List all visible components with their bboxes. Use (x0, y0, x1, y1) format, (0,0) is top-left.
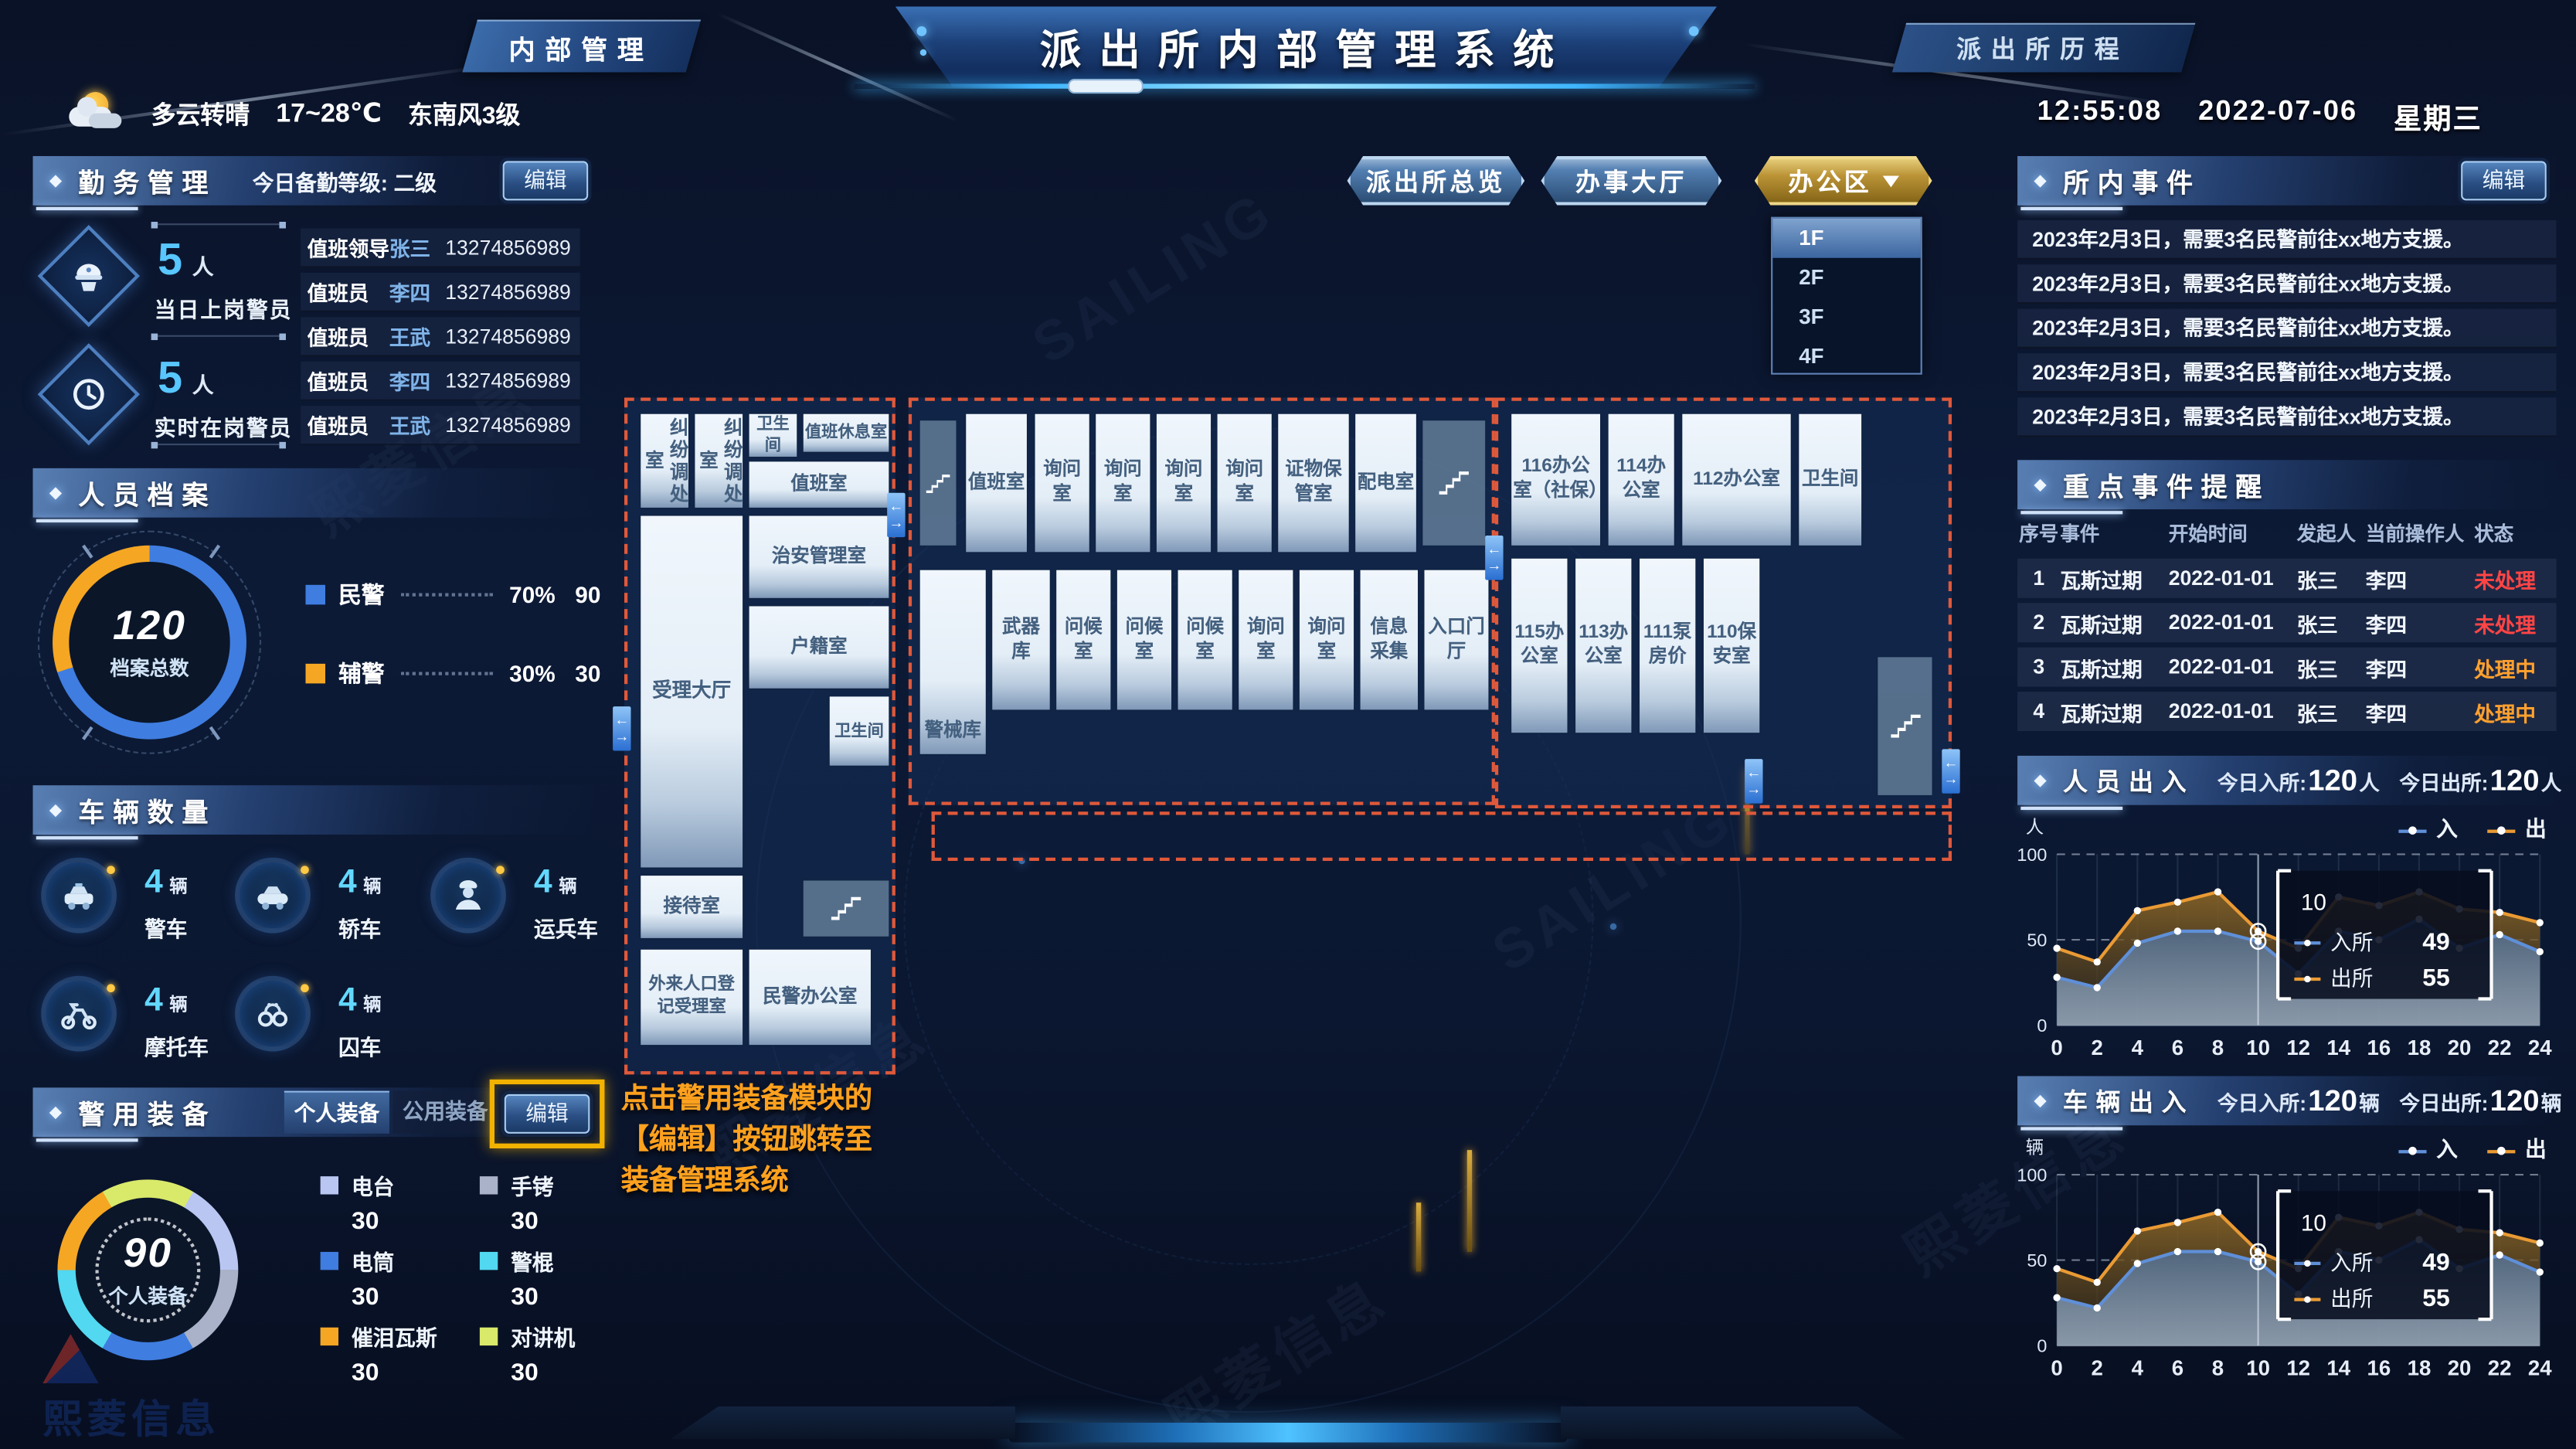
legend-value: 30 (511, 1283, 553, 1311)
weather-temp: 17~28℃ (276, 97, 382, 130)
roster-role: 值班员 (301, 409, 389, 440)
room[interactable]: 值班室 (749, 461, 889, 508)
chart-legend[interactable]: 入 出 (2398, 811, 2546, 842)
svg-text:8: 8 (2212, 1036, 2224, 1060)
weather-icon (69, 92, 124, 134)
status-badge: 处理中 (2474, 651, 2553, 682)
door-icon: ←→ (1942, 749, 1959, 793)
room[interactable]: 112办公室 (1682, 414, 1790, 546)
room[interactable]: 卫生间 (830, 696, 889, 765)
event-item: 2023年2月3日，需要3名民警前往xx地方支援。 (2017, 397, 2556, 437)
door-icon: ←→ (613, 706, 630, 750)
realtime-count-unit: 人 (192, 373, 214, 398)
svg-text:出所: 出所 (2330, 1287, 2373, 1311)
duty-edit-button[interactable]: 编辑 (503, 161, 589, 200)
equipment-legend-item: 警棍 30 (480, 1245, 554, 1311)
svg-text:6: 6 (2172, 1355, 2183, 1379)
room[interactable]: 111泵房价 (1640, 559, 1695, 733)
legend-label: 辅警 (338, 657, 385, 690)
legend-percent: 30% (509, 661, 556, 687)
vendor-logo-mark (42, 1334, 98, 1383)
glow-bar (1416, 1202, 1421, 1271)
panel-duty-title: 勤务管理 (78, 161, 216, 200)
roster-phone: 13274856989 (445, 369, 571, 392)
equipment-legend-item: 电筒 30 (321, 1245, 395, 1311)
legend-swatch (321, 1328, 338, 1345)
roster-row: 值班员 王武 13274856989 (301, 406, 579, 445)
room[interactable]: 询问室 (1300, 570, 1354, 710)
equipment-gauge: 90 个人装备 (57, 1179, 238, 1360)
panel-vehicle-flow-title: 车辆出入 (2063, 1083, 2194, 1118)
room[interactable]: 询问室 (1096, 414, 1150, 553)
svg-text:0: 0 (2051, 1036, 2062, 1060)
vehicle-count: 4辆 (338, 982, 382, 1020)
diamond-icon: ◆ (49, 484, 62, 502)
panel-archives-title: 人员档案 (78, 473, 216, 512)
svg-text:入所: 入所 (2330, 1250, 2373, 1274)
room[interactable]: 问候室 (1117, 570, 1171, 710)
event-item: 2023年2月3日，需要3名民警前往xx地方支援。 (2017, 264, 2556, 304)
edit-highlight-box (490, 1080, 605, 1148)
weather-widget: 多云转晴 17~28℃ 东南风3级 (69, 92, 520, 134)
key-events-row: 2 瓦斯过期 2022-01-01 张三 李四 未处理 (2017, 603, 2556, 642)
panel-key-events-header: ◆ 重点事件提醒 (2017, 460, 2556, 509)
diamond-icon: ◆ (49, 1104, 62, 1121)
svg-text:入所: 入所 (2330, 930, 2373, 954)
legend-label: 民警 (338, 578, 385, 611)
room[interactable]: 值班室 (966, 414, 1027, 553)
panel-vehicle-flow-header: ◆ 车辆出入 今日入所:120辆 今日出所:120辆 (2017, 1076, 2556, 1125)
room[interactable]: 询问室 (1239, 570, 1293, 710)
panel-vehicles-header: ◆ 车辆数量 (33, 785, 595, 835)
legend-swatch (480, 1176, 498, 1194)
equipment-gauge-dot-ring (95, 1217, 200, 1322)
duty-level-label: 今日备勤等级: 二级 (253, 165, 437, 196)
svg-text:8: 8 (2212, 1355, 2224, 1379)
door-icon: ←→ (1485, 536, 1503, 580)
panel-person-flow-title: 人员出入 (2063, 763, 2194, 798)
legend-swatch (305, 664, 325, 684)
svg-text:2: 2 (2092, 1355, 2103, 1379)
room[interactable]: 询问室 (1157, 414, 1211, 553)
clock-weekday: 星期三 (2394, 95, 2483, 136)
vehicle-name: 运兵车 (534, 912, 598, 943)
svg-text:100: 100 (2017, 845, 2047, 865)
room[interactable]: 问候室 (1178, 570, 1232, 710)
svg-text:18: 18 (2408, 1355, 2432, 1379)
svg-text:10: 10 (2301, 1210, 2326, 1236)
roster-name: 李四 (389, 365, 445, 396)
title-dot (920, 49, 927, 56)
vehicle-count: 4辆 (144, 982, 188, 1020)
equipment-legend-item: 电台 30 (321, 1170, 395, 1236)
nav-station-history-label: 派出所历程 (1957, 31, 2129, 66)
title-pill (1068, 79, 1144, 94)
svg-text:22: 22 (2488, 1036, 2512, 1060)
bottom-deco-left (671, 1406, 1016, 1440)
svg-text:10: 10 (2246, 1036, 2270, 1060)
tab-office-area[interactable]: 办公区 (1755, 156, 1932, 206)
room[interactable]: 接待室 (641, 876, 743, 938)
archives-total: 120 (113, 603, 186, 651)
svg-text:14: 14 (2326, 1036, 2350, 1060)
svg-text:4: 4 (2132, 1355, 2144, 1379)
legend-percent: 70% (509, 582, 556, 608)
room[interactable]: 警械库 (920, 570, 986, 754)
svg-text:55: 55 (2422, 1284, 2449, 1311)
realtime-caption: 实时在岗警员 (155, 410, 293, 441)
officer-icon (430, 858, 506, 934)
on-duty-count-unit: 人 (192, 255, 214, 280)
room[interactable]: 116办公室（社保） (1511, 414, 1600, 546)
vehicle-flow-chart: 入 出 024681012141618202224050100辆10入所49出所… (2017, 1128, 2556, 1401)
roster-name: 张三 (389, 232, 445, 263)
divider (151, 444, 286, 445)
svg-text:0: 0 (2051, 1355, 2062, 1379)
car-icon (235, 858, 311, 934)
roster-role: 值班员 (301, 365, 389, 396)
door-icon: ←→ (1745, 759, 1762, 803)
room[interactable]: 卫生间 (1799, 414, 1861, 546)
svg-text:辆: 辆 (2026, 1137, 2044, 1157)
key-events-row: 1 瓦斯过期 2022-01-01 张三 李四 未处理 (2017, 559, 2556, 598)
svg-text:0: 0 (2037, 1336, 2047, 1356)
room[interactable]: 户籍室 (749, 606, 889, 688)
svg-text:10: 10 (2301, 890, 2326, 916)
person-flow-chart: 入 出 024681012141618202224050100人10入所49出所… (2017, 808, 2556, 1081)
stairs-icon (1422, 420, 1485, 546)
svg-text:0: 0 (2037, 1015, 2047, 1036)
floor-option-1f[interactable]: 1F (1772, 219, 1920, 258)
archives-legend-minjing: 民警 70% 90 (305, 578, 600, 611)
room[interactable]: 入口门厅 (1425, 570, 1489, 710)
room[interactable]: 询问室 (1218, 414, 1272, 553)
svg-text:16: 16 (2367, 1355, 2391, 1379)
weather-wind: 东南风3级 (408, 96, 520, 131)
roster-phone: 13274856989 (445, 236, 571, 259)
svg-text:14: 14 (2326, 1355, 2350, 1379)
tab-office-area-label: 办公区 (1788, 164, 1871, 199)
title-dot (1689, 26, 1699, 36)
roster-row: 值班员 李四 13274856989 (301, 362, 579, 401)
clock-icon (70, 376, 107, 413)
floor-dropdown: 1F 2F 3F 4F (1771, 217, 1922, 375)
tab-station-overview[interactable]: 派出所总览 (1347, 156, 1525, 206)
vehicle-in-stat: 今日入所:120辆 (2217, 1083, 2380, 1118)
svg-text:16: 16 (2367, 1036, 2391, 1060)
person-out-stat: 今日出所:120人 (2399, 763, 2561, 798)
room[interactable]: 110保安室 (1704, 559, 1759, 733)
room[interactable]: 问候室 (1056, 570, 1110, 710)
on-duty-count-value: 5 (158, 235, 182, 284)
panel-equipment-title: 警用装备 (78, 1093, 216, 1132)
on-duty-caption: 当日上岗警员 (155, 292, 293, 323)
svg-text:12: 12 (2286, 1036, 2310, 1060)
legend-value: 30 (511, 1208, 553, 1236)
floor-option-2f[interactable]: 2F (1772, 258, 1920, 298)
key-events-table-header: 序号 事件 开始时间 发起人 当前操作人 状态 (2017, 516, 2556, 549)
annotation-line: 装备管理系统 (621, 1160, 950, 1201)
equipment-legend-item: 催泪瓦斯 30 (321, 1321, 437, 1386)
svg-text:18: 18 (2408, 1036, 2432, 1060)
svg-text:20: 20 (2448, 1355, 2472, 1379)
room[interactable]: 民警办公室 (749, 950, 871, 1045)
roster-name: 王武 (389, 321, 445, 352)
vehicle-name: 摩托车 (144, 1030, 209, 1061)
datetime-widget: 12:55:08 2022-07-06 星期三 (2037, 95, 2563, 136)
room[interactable]: 值班休息室 (804, 414, 889, 452)
room[interactable]: 纠纷调处室 (695, 414, 743, 508)
room[interactable]: 纠纷调处室 (641, 414, 688, 508)
svg-text:22: 22 (2488, 1355, 2512, 1379)
title-edge-glow (855, 83, 1755, 88)
vendor-logo-text: 熙菱信息 (42, 1386, 220, 1444)
equipment-legend-item: 手铐 30 (480, 1170, 554, 1236)
legend-value: 30 (575, 661, 600, 687)
title-dot (916, 26, 926, 36)
equipment-legend-item: 对讲机 30 (480, 1321, 575, 1386)
legend-in: 入 (2398, 811, 2458, 842)
event-item: 2023年2月3日，需要3名民警前往xx地方支援。 (2017, 353, 2556, 393)
roster-phone: 13274856989 (445, 280, 571, 303)
vehicle-count: 4辆 (534, 864, 577, 902)
nav-station-history[interactable]: 派出所历程 (1892, 23, 2196, 73)
legend-value: 90 (575, 582, 600, 608)
door-icon: ←→ (887, 493, 905, 537)
chevron-down-icon (1882, 175, 1898, 186)
room[interactable]: 114办公室 (1609, 414, 1674, 546)
roster-row: 值班员 李四 13274856989 (301, 273, 579, 312)
realtime-count: 5人 (158, 353, 213, 404)
glow-bar (1467, 1150, 1472, 1252)
legend-value: 30 (511, 1359, 575, 1386)
panel-person-flow-header: ◆ 人员出入 今日入所:120人 今日出所:120人 (2017, 756, 2556, 805)
svg-text:10: 10 (2246, 1355, 2270, 1379)
event-item: 2023年2月3日，需要3名民警前往xx地方支援。 (2017, 220, 2556, 260)
stairs-icon (920, 420, 957, 546)
tab-personal-equipment[interactable]: 个人装备 (284, 1091, 389, 1134)
stairs-icon (804, 880, 889, 936)
svg-text:50: 50 (2027, 930, 2047, 951)
divider (151, 335, 286, 337)
roster-phone: 13274856989 (445, 413, 571, 437)
archives-legend-fujing: 辅警 30% 30 (305, 657, 600, 690)
svg-text:出所: 出所 (2330, 967, 2373, 991)
svg-text:49: 49 (2422, 927, 2449, 955)
app-title-banner: 派出所内部管理系统 (895, 7, 1717, 87)
bottom-glow-bar (1009, 1423, 1568, 1443)
realtime-count-value: 5 (158, 353, 182, 403)
divider (151, 223, 286, 225)
legend-swatch (480, 1328, 498, 1345)
svg-text:100: 100 (2017, 1165, 2047, 1185)
tab-service-hall-label: 办事大厅 (1575, 164, 1687, 199)
legend-swatch (480, 1252, 498, 1270)
chart-legend[interactable]: 入 出 (2398, 1132, 2546, 1163)
vehicle-count: 4辆 (144, 864, 188, 902)
legend-value: 30 (352, 1359, 437, 1386)
floor-option-4f[interactable]: 4F (1772, 337, 1920, 376)
floor-option-3f[interactable]: 3F (1772, 298, 1920, 337)
room[interactable]: 113办公室 (1575, 559, 1631, 733)
room[interactable]: 卫生间 (749, 414, 797, 457)
legend-in: 入 (2398, 1132, 2458, 1163)
tab-station-overview-label: 派出所总览 (1366, 164, 1506, 199)
weather-condition: 多云转晴 (151, 96, 250, 131)
realtime-officers-icon (38, 343, 140, 445)
vehicle-name: 囚车 (338, 1030, 381, 1061)
corridor (932, 811, 1952, 861)
room[interactable]: 证物保管室 (1278, 414, 1348, 553)
tab-public-equipment[interactable]: 公用装备 (393, 1091, 498, 1134)
watermark: SAILING (1022, 179, 1287, 378)
roster-name: 王武 (389, 409, 445, 440)
roster-role: 值班员 (301, 321, 389, 352)
stairs-icon (1878, 657, 1932, 795)
svg-text:24: 24 (2528, 1036, 2552, 1060)
diamond-icon: ◆ (2034, 771, 2046, 789)
page-title: 派出所内部管理系统 (1040, 17, 1572, 77)
svg-text:20: 20 (2448, 1036, 2472, 1060)
panel-events-title: 所内事件 (2063, 161, 2201, 200)
archives-gauge-center: 120 档案总数 (69, 562, 229, 723)
key-events-row: 3 瓦斯过期 2022-01-01 张三 李四 处理中 (2017, 648, 2556, 687)
room[interactable]: 武器库 (992, 570, 1049, 710)
nav-internal-management-label: 内部管理 (509, 27, 654, 66)
room[interactable]: 外来人口登记受理室 (641, 950, 743, 1045)
events-edit-button[interactable]: 编辑 (2461, 161, 2547, 200)
bg-dot (1610, 923, 1617, 930)
roster-phone: 13274856989 (445, 325, 571, 348)
archives-gauge: 120 档案总数 (53, 546, 246, 740)
legend-leader (401, 593, 493, 596)
legend-value: 30 (352, 1208, 394, 1236)
on-duty-count: 5人 (158, 235, 213, 286)
diamond-icon: ◆ (2034, 172, 2046, 189)
room[interactable]: 受理大厅 (641, 516, 743, 868)
annotation-line: 【编辑】按钮跳转至 (621, 1119, 950, 1160)
vehicle-name: 轿车 (338, 912, 381, 943)
bottom-deco-right (1561, 1406, 1906, 1440)
panel-key-events-title: 重点事件提醒 (2063, 465, 2270, 505)
room[interactable]: 配电室 (1355, 414, 1416, 553)
legend-out: 出 (2487, 1132, 2547, 1163)
clock-date: 2022-07-06 (2198, 95, 2357, 136)
svg-text:55: 55 (2422, 964, 2449, 992)
police-car-icon (41, 858, 117, 934)
vehicle-name: 警车 (144, 912, 187, 943)
vehicle-out-stat: 今日出所:120辆 (2399, 1083, 2561, 1118)
key-events-row: 4 瓦斯过期 2022-01-01 张三 李四 处理中 (2017, 692, 2556, 731)
annotation-line: 点击警用装备模块的 (621, 1078, 950, 1119)
tab-service-hall[interactable]: 办事大厅 (1541, 156, 1721, 206)
room[interactable]: 信息采集 (1361, 570, 1418, 710)
legend-leader (401, 672, 493, 675)
legend-value: 30 (352, 1283, 394, 1311)
panel-archives-header: ◆ 人员档案 (33, 468, 595, 518)
svg-text:6: 6 (2172, 1036, 2183, 1060)
svg-text:24: 24 (2528, 1355, 2552, 1379)
vehicle-count: 4辆 (338, 864, 382, 902)
svg-text:人: 人 (2026, 817, 2044, 837)
event-item: 2023年2月3日，需要3名民警前往xx地方支援。 (2017, 309, 2556, 349)
on-duty-officers-icon (38, 225, 140, 327)
roster-row: 值班员 王武 13274856989 (301, 317, 579, 356)
status-badge: 未处理 (2474, 607, 2553, 638)
status-badge: 未处理 (2474, 563, 2553, 594)
room[interactable]: 治安管理室 (749, 516, 889, 598)
diamond-icon: ◆ (49, 172, 62, 189)
nav-internal-management[interactable]: 内部管理 (462, 20, 701, 73)
diamond-icon: ◆ (2034, 1092, 2046, 1110)
person-in-stat: 今日入所:120人 (2217, 763, 2380, 798)
area-chart-svg: 024681012141618202224050100辆10入所49出所55 (2017, 1128, 2556, 1401)
annotation-callout: 点击警用装备模块的 【编辑】按钮跳转至 装备管理系统 (621, 1078, 950, 1201)
clock-time: 12:55:08 (2037, 95, 2163, 136)
svg-text:50: 50 (2027, 1250, 2047, 1270)
svg-text:12: 12 (2286, 1355, 2310, 1379)
roster-row: 值班领导 张三 13274856989 (301, 229, 579, 268)
status-badge: 处理中 (2474, 696, 2553, 726)
roster-role: 值班领导 (301, 232, 389, 263)
svg-text:49: 49 (2422, 1247, 2449, 1275)
room[interactable]: 115办公室 (1511, 559, 1567, 733)
dashboard: 熙菱信息 SAILING SAILING 熙菱信息 熙菱信息 熙菱信息 熙菱信息… (0, 0, 2576, 1449)
motorcycle-icon (41, 976, 117, 1052)
area-chart-svg: 024681012141618202224050100人10入所49出所55 (2017, 808, 2556, 1081)
roster-name: 李四 (389, 276, 445, 307)
legend-swatch (321, 1176, 338, 1194)
diamond-icon: ◆ (49, 801, 62, 818)
diamond-icon: ◆ (2034, 475, 2046, 493)
legend-swatch (321, 1252, 338, 1270)
legend-out: 出 (2487, 811, 2547, 842)
legend-swatch (305, 585, 325, 605)
svg-text:4: 4 (2132, 1036, 2144, 1060)
handcuffs-icon (235, 976, 311, 1052)
archives-total-label: 档案总数 (110, 654, 189, 682)
svg-text:2: 2 (2092, 1036, 2103, 1060)
room[interactable]: 询问室 (1035, 414, 1089, 553)
roster-role: 值班员 (301, 276, 389, 307)
panel-vehicles-title: 车辆数量 (78, 791, 216, 830)
police-cap-icon (70, 258, 107, 294)
